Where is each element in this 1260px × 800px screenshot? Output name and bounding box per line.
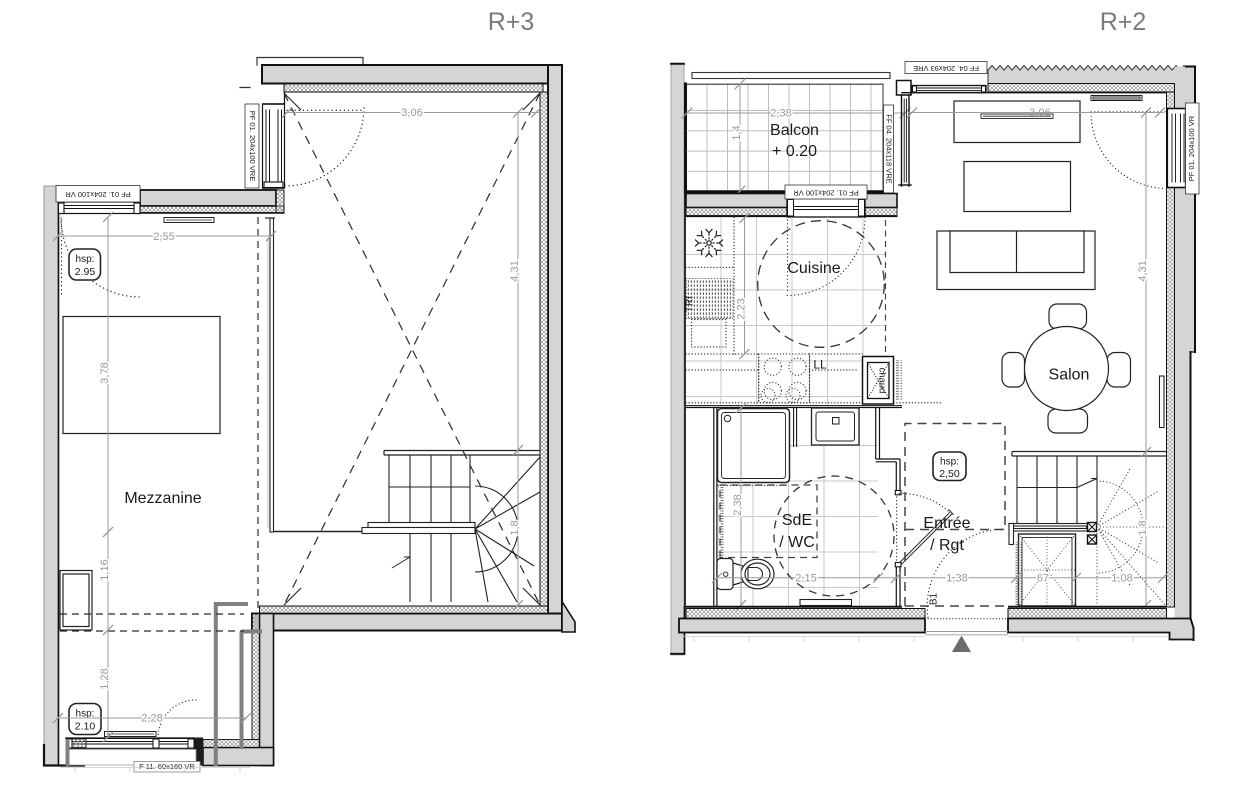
svg-text:PF 01. 204x100 VR: PF 01. 204x100 VR xyxy=(1187,115,1196,181)
svg-text:Cuisine: Cuisine xyxy=(787,260,840,277)
svg-text:R+3: R+3 xyxy=(488,8,535,36)
svg-text:2,38: 2,38 xyxy=(732,494,744,515)
svg-text:2,23: 2,23 xyxy=(736,298,748,319)
svg-text:1,38: 1,38 xyxy=(946,573,967,585)
svg-text:1,8: 1,8 xyxy=(509,520,521,535)
svg-text:4,31: 4,31 xyxy=(1137,260,1149,281)
svg-text:4,31: 4,31 xyxy=(509,260,521,281)
svg-text:67: 67 xyxy=(1037,573,1049,585)
svg-text:1,28: 1,28 xyxy=(99,668,111,689)
svg-text:2.95: 2.95 xyxy=(75,266,96,278)
svg-text:Mezzanine: Mezzanine xyxy=(124,490,201,507)
svg-text:Salon: Salon xyxy=(1049,367,1090,384)
svg-text:2,55: 2,55 xyxy=(153,231,174,243)
svg-text:/ WC: / WC xyxy=(779,534,815,551)
svg-text:1,16: 1,16 xyxy=(99,559,111,580)
svg-text:2.10: 2.10 xyxy=(75,721,96,733)
svg-text:PF 01. 204x100 VR: PF 01. 204x100 VR xyxy=(793,188,859,197)
svg-text:Balcon: Balcon xyxy=(770,122,819,139)
svg-text:2,28: 2,28 xyxy=(141,713,162,725)
svg-text:F 11. 60x160 VR: F 11. 60x160 VR xyxy=(139,762,195,771)
svg-text:PF 01. 204x100 VR: PF 01. 204x100 VR xyxy=(65,190,131,199)
svg-text:2,38: 2,38 xyxy=(770,108,791,120)
svg-text:chaud: chaud xyxy=(877,368,888,394)
svg-text:3,06: 3,06 xyxy=(401,107,422,119)
svg-text:Entrée: Entrée xyxy=(923,515,970,532)
svg-text:hsp:: hsp: xyxy=(76,254,95,265)
svg-text:+ 0.20: + 0.20 xyxy=(772,143,817,160)
svg-text:B1: B1 xyxy=(929,592,940,605)
svg-text:FF 04. 204x118 VRE: FF 04. 204x118 VRE xyxy=(885,114,894,183)
svg-text:1,4: 1,4 xyxy=(731,125,743,140)
svg-text:hsp:: hsp: xyxy=(940,457,959,468)
svg-text:1,08: 1,08 xyxy=(1111,573,1132,585)
svg-text:FF 04. 204x93 VRE: FF 04. 204x93 VRE xyxy=(913,64,979,73)
svg-text:3,78: 3,78 xyxy=(99,362,111,383)
svg-text:3,06: 3,06 xyxy=(1029,107,1050,119)
svg-text:/ Rgt: / Rgt xyxy=(930,537,964,554)
svg-text:SdE: SdE xyxy=(782,512,812,529)
svg-text:2,50: 2,50 xyxy=(939,468,960,480)
svg-text:1,8: 1,8 xyxy=(1137,520,1149,535)
svg-text:PF 01. 204x100 VRE: PF 01. 204x100 VRE xyxy=(248,111,257,181)
svg-text:R+2: R+2 xyxy=(1100,8,1147,36)
svg-text:LL: LL xyxy=(813,358,827,372)
svg-text:2,15: 2,15 xyxy=(795,573,816,585)
svg-text:TRI: TRI xyxy=(685,296,696,312)
